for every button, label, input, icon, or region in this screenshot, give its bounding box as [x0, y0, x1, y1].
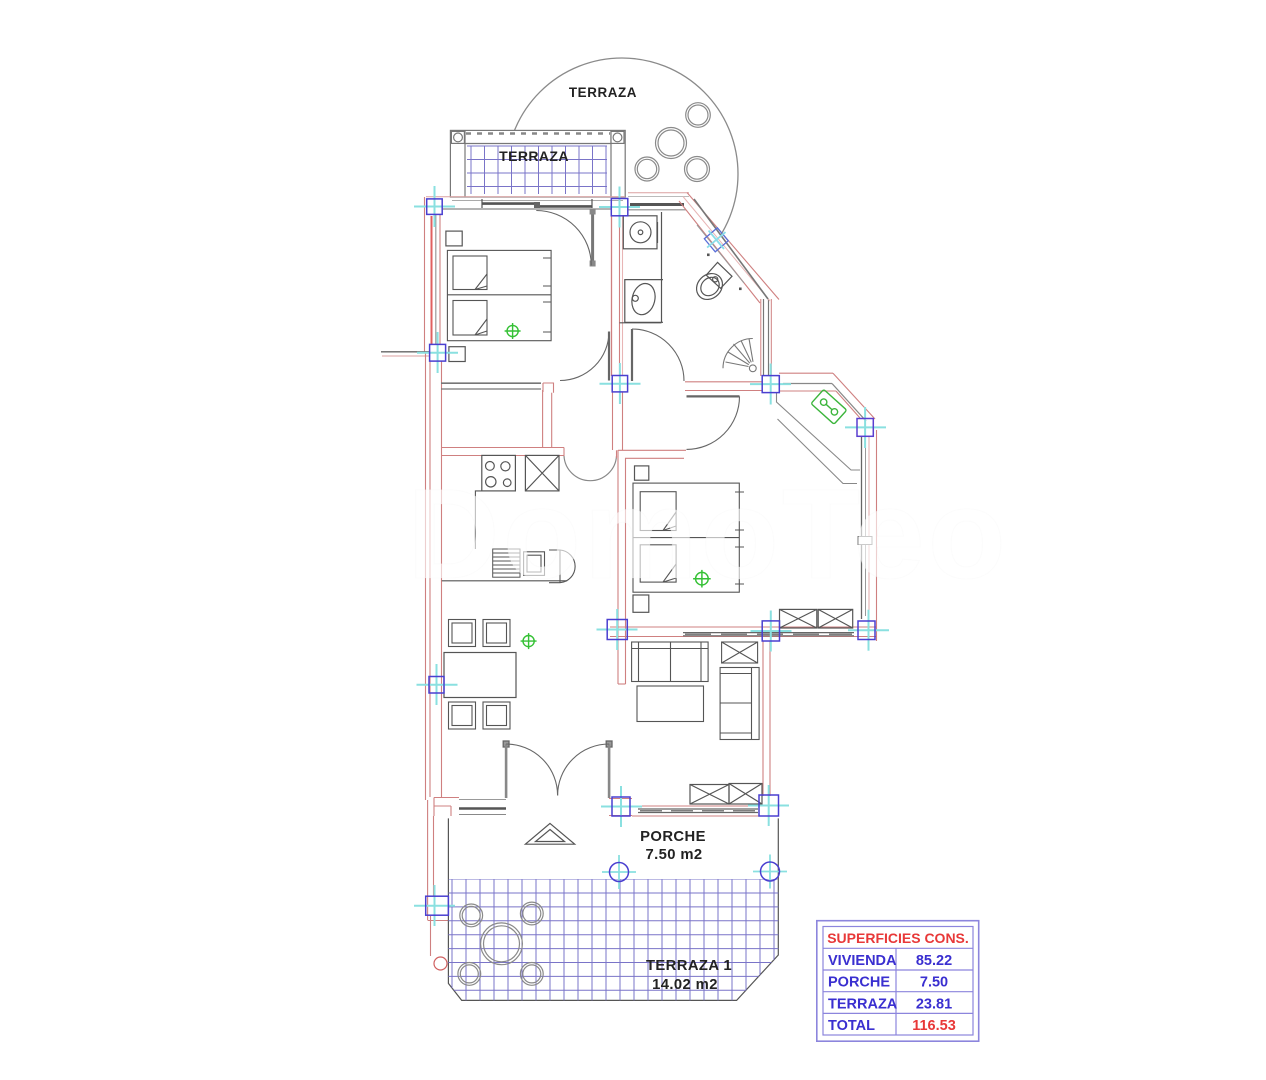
svg-text:23.81: 23.81	[916, 996, 952, 1012]
svg-text:TERRAZA: TERRAZA	[828, 996, 898, 1012]
svg-text:7.50: 7.50	[920, 975, 948, 991]
svg-text:7.50 m2: 7.50 m2	[645, 847, 702, 863]
svg-text:PORCHE: PORCHE	[828, 975, 890, 991]
svg-text:VIVIENDA: VIVIENDA	[828, 953, 897, 969]
svg-text:85.22: 85.22	[916, 953, 952, 969]
svg-text:TERRAZA: TERRAZA	[499, 148, 569, 164]
svg-text:DomoTeo: DomoTeo	[407, 463, 1009, 606]
svg-text:14.02 m2: 14.02 m2	[652, 977, 718, 993]
svg-text:PORCHE: PORCHE	[640, 829, 706, 845]
svg-text:TOTAL: TOTAL	[828, 1018, 875, 1034]
svg-text:116.53: 116.53	[912, 1018, 956, 1034]
svg-text:TERRAZA 1: TERRAZA 1	[646, 958, 732, 974]
svg-text:TERRAZA: TERRAZA	[569, 85, 637, 100]
svg-text:SUPERFICIES CONS.: SUPERFICIES CONS.	[827, 930, 969, 946]
